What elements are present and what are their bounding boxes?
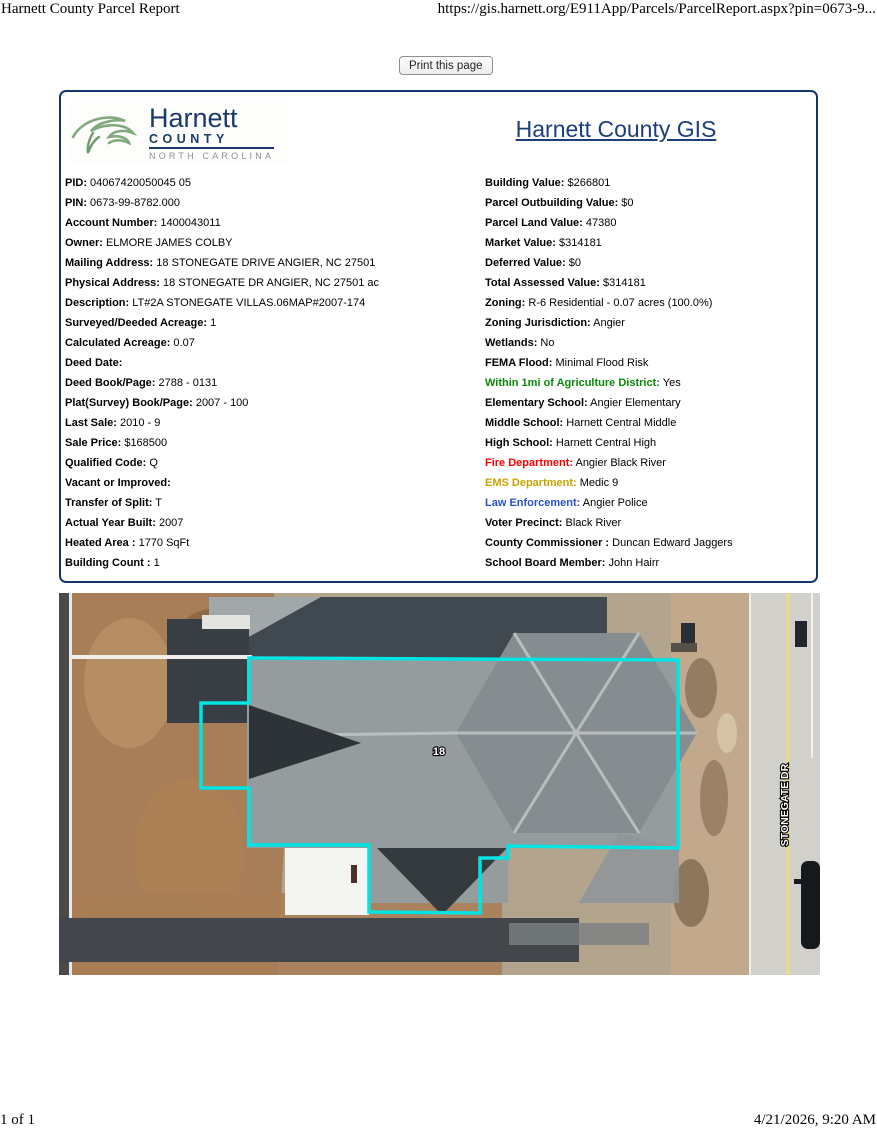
field-row-right-15: EMS Department: Medic 9: [485, 477, 813, 497]
field-value: Duncan Edward Jaggers: [609, 537, 733, 549]
field-row-left-10: Deed Book/Page: 2788 - 0131: [65, 377, 485, 397]
field-value: Angier Elementary: [588, 397, 681, 409]
field-row-left-9: Deed Date:: [65, 357, 485, 377]
field-value: $314181: [600, 277, 646, 289]
field-row-right-16: Law Enforcement: Angier Police: [485, 497, 813, 517]
field-row-right-6: Zoning: R-6 Residential - 0.07 acres (10…: [485, 297, 813, 317]
field-label: High School:: [485, 437, 553, 449]
field-label: Zoning Jurisdiction:: [485, 317, 591, 329]
field-row-left-1: PIN: 0673-99-8782.000: [65, 197, 485, 217]
field-label: Deed Date:: [65, 357, 122, 369]
field-label: Deferred Value:: [485, 257, 566, 269]
field-value: R-6 Residential - 0.07 acres (100.0%): [525, 297, 712, 309]
field-row-left-6: Description: LT#2A STONEGATE VILLAS.06MA…: [65, 297, 485, 317]
field-value: 1: [151, 557, 160, 569]
field-label: Vacant or Improved:: [65, 477, 171, 489]
field-label: Middle School:: [485, 417, 563, 429]
print-datetime: 4/21/2026, 9:20 AM: [754, 1112, 876, 1129]
field-value: 2007 - 100: [193, 397, 249, 409]
field-value: Harnett Central Middle: [563, 417, 676, 429]
parcel-report-card: Harnett COUNTY NORTH CAROLINA Harnett Co…: [59, 90, 818, 583]
field-row-right-18: County Commissioner : Duncan Edward Jagg…: [485, 537, 813, 557]
field-label: Plat(Survey) Book/Page:: [65, 397, 193, 409]
field-value: $0: [566, 257, 581, 269]
field-value: 2007: [156, 517, 184, 529]
field-label: Description:: [65, 297, 129, 309]
field-label: Market Value:: [485, 237, 556, 249]
field-label: County Commissioner :: [485, 537, 609, 549]
field-label: Voter Precinct:: [485, 517, 562, 529]
field-label: Owner:: [65, 237, 103, 249]
field-row-left-7: Surveyed/Deeded Acreage: 1: [65, 317, 485, 337]
print-this-page-button[interactable]: Print this page: [399, 56, 493, 75]
field-row-left-18: Heated Area : 1770 SqFt: [65, 537, 485, 557]
field-value: Q: [146, 457, 158, 469]
field-value: 0673-99-8782.000: [87, 197, 180, 209]
field-value: 1: [207, 317, 216, 329]
field-row-right-12: Middle School: Harnett Central Middle: [485, 417, 813, 437]
field-label: Parcel Land Value:: [485, 217, 583, 229]
field-value: 2788 - 0131: [155, 377, 217, 389]
field-label: Physical Address:: [65, 277, 160, 289]
field-label: Last Sale:: [65, 417, 117, 429]
field-row-right-3: Market Value: $314181: [485, 237, 813, 257]
field-label: Calculated Acreage:: [65, 337, 170, 349]
field-value: T: [152, 497, 162, 509]
field-label: Building Count :: [65, 557, 151, 569]
field-row-left-19: Building Count : 1: [65, 557, 485, 577]
field-row-right-14: Fire Department: Angier Black River: [485, 457, 813, 477]
field-row-left-3: Owner: ELMORE JAMES COLBY: [65, 237, 485, 257]
field-value: 2010 - 9: [117, 417, 160, 429]
parcel-number-label: 18: [433, 746, 445, 758]
field-row-right-4: Deferred Value: $0: [485, 257, 813, 277]
field-row-right-11: Elementary School: Angier Elementary: [485, 397, 813, 417]
page-indicator: 1 of 1: [0, 1112, 35, 1129]
field-value: LT#2A STONEGATE VILLAS.06MAP#2007-174: [129, 297, 365, 309]
field-value: 04067420050045 05: [87, 177, 191, 189]
field-value: Angier: [591, 317, 625, 329]
field-label: Zoning:: [485, 297, 525, 309]
field-label: Within 1mi of Agriculture District:: [485, 377, 660, 389]
field-value: Minimal Flood Risk: [552, 357, 648, 369]
field-label: Sale Price:: [65, 437, 121, 449]
field-row-left-2: Account Number: 1400043011: [65, 217, 485, 237]
field-row-right-7: Zoning Jurisdiction: Angier: [485, 317, 813, 337]
field-label: EMS Department:: [485, 477, 577, 489]
field-value: 47380: [583, 217, 617, 229]
logo-county-text: COUNTY: [149, 133, 274, 149]
field-label: Transfer of Split:: [65, 497, 152, 509]
logo-name-text: Harnett: [149, 105, 274, 132]
field-value: Yes: [660, 377, 681, 389]
field-row-right-10: Within 1mi of Agriculture District: Yes: [485, 377, 813, 397]
print-header-title: Harnett County Parcel Report: [1, 1, 180, 18]
field-label: Building Value:: [485, 177, 564, 189]
field-label: Deed Book/Page:: [65, 377, 155, 389]
field-row-left-13: Sale Price: $168500: [65, 437, 485, 457]
survey-line: [72, 655, 252, 659]
field-value: 1770 SqFt: [136, 537, 190, 549]
logo-state-text: NORTH CAROLINA: [149, 152, 274, 161]
aerial-imagery: 18 STONEGATE DR: [59, 593, 820, 975]
field-label: Total Assessed Value:: [485, 277, 600, 289]
field-label: Surveyed/Deeded Acreage:: [65, 317, 207, 329]
field-row-right-9: FEMA Flood: Minimal Flood Risk: [485, 357, 813, 377]
field-row-left-0: PID: 04067420050045 05: [65, 177, 485, 197]
field-value: $314181: [556, 237, 602, 249]
field-label: Parcel Outbuilding Value:: [485, 197, 618, 209]
harnett-county-logo: Harnett COUNTY NORTH CAROLINA: [69, 102, 289, 164]
field-label: Law Enforcement:: [485, 497, 580, 509]
field-label: Heated Area :: [65, 537, 136, 549]
parcel-fields-left-column: PID: 04067420050045 05PIN: 0673-99-8782.…: [65, 177, 485, 577]
car: [801, 861, 820, 949]
field-row-left-15: Vacant or Improved:: [65, 477, 485, 497]
field-value: 18 STONEGATE DRIVE ANGIER, NC 27501: [153, 257, 375, 269]
field-label: Mailing Address:: [65, 257, 153, 269]
field-value: $0: [618, 197, 633, 209]
field-label: Elementary School:: [485, 397, 588, 409]
field-value: ELMORE JAMES COLBY: [103, 237, 233, 249]
field-row-right-2: Parcel Land Value: 47380: [485, 217, 813, 237]
field-value: 18 STONEGATE DR ANGIER, NC 27501 ac: [160, 277, 379, 289]
field-row-left-11: Plat(Survey) Book/Page: 2007 - 100: [65, 397, 485, 417]
field-label: PIN:: [65, 197, 87, 209]
tree-swoosh-icon: [69, 107, 147, 159]
parcel-aerial-map: 18 STONEGATE DR: [59, 593, 820, 975]
field-row-left-5: Physical Address: 18 STONEGATE DR ANGIER…: [65, 277, 485, 297]
field-label: FEMA Flood:: [485, 357, 552, 369]
field-row-left-8: Calculated Acreage: 0.07: [65, 337, 485, 357]
field-value: Medic 9: [577, 477, 619, 489]
field-label: PID:: [65, 177, 87, 189]
field-value: Angier Black River: [573, 457, 666, 469]
field-value: Harnett Central High: [553, 437, 656, 449]
field-value: 1400043011: [157, 217, 220, 229]
field-value: Angier Police: [580, 497, 647, 509]
harnett-county-gis-link[interactable]: Harnett County GIS: [461, 116, 771, 143]
field-label: Actual Year Built:: [65, 517, 156, 529]
field-value: No: [537, 337, 554, 349]
field-row-left-17: Actual Year Built: 2007: [65, 517, 485, 537]
field-value: John Hairr: [605, 557, 659, 569]
field-label: Wetlands:: [485, 337, 537, 349]
print-header-url: https://gis.harnett.org/E911App/Parcels/…: [438, 1, 876, 18]
field-label: Qualified Code:: [65, 457, 146, 469]
field-row-right-17: Voter Precinct: Black River: [485, 517, 813, 537]
field-row-left-4: Mailing Address: 18 STONEGATE DRIVE ANGI…: [65, 257, 485, 277]
field-row-right-19: School Board Member: John Hairr: [485, 557, 813, 577]
field-row-left-16: Transfer of Split: T: [65, 497, 485, 517]
field-row-right-5: Total Assessed Value: $314181: [485, 277, 813, 297]
field-value: $168500: [121, 437, 167, 449]
field-row-right-8: Wetlands: No: [485, 337, 813, 357]
parcel-fields-right-column: Building Value: $266801Parcel Outbuildin…: [485, 177, 813, 577]
field-value: Black River: [562, 517, 621, 529]
field-row-left-14: Qualified Code: Q: [65, 457, 485, 477]
field-label: School Board Member:: [485, 557, 605, 569]
field-value: 0.07: [170, 337, 194, 349]
field-row-right-13: High School: Harnett Central High: [485, 437, 813, 457]
field-value: $266801: [564, 177, 610, 189]
field-label: Fire Department:: [485, 457, 573, 469]
field-row-right-1: Parcel Outbuilding Value: $0: [485, 197, 813, 217]
street-name-label: STONEGATE DR: [779, 763, 791, 846]
field-row-left-12: Last Sale: 2010 - 9: [65, 417, 485, 437]
field-label: Account Number:: [65, 217, 157, 229]
field-row-right-0: Building Value: $266801: [485, 177, 813, 197]
